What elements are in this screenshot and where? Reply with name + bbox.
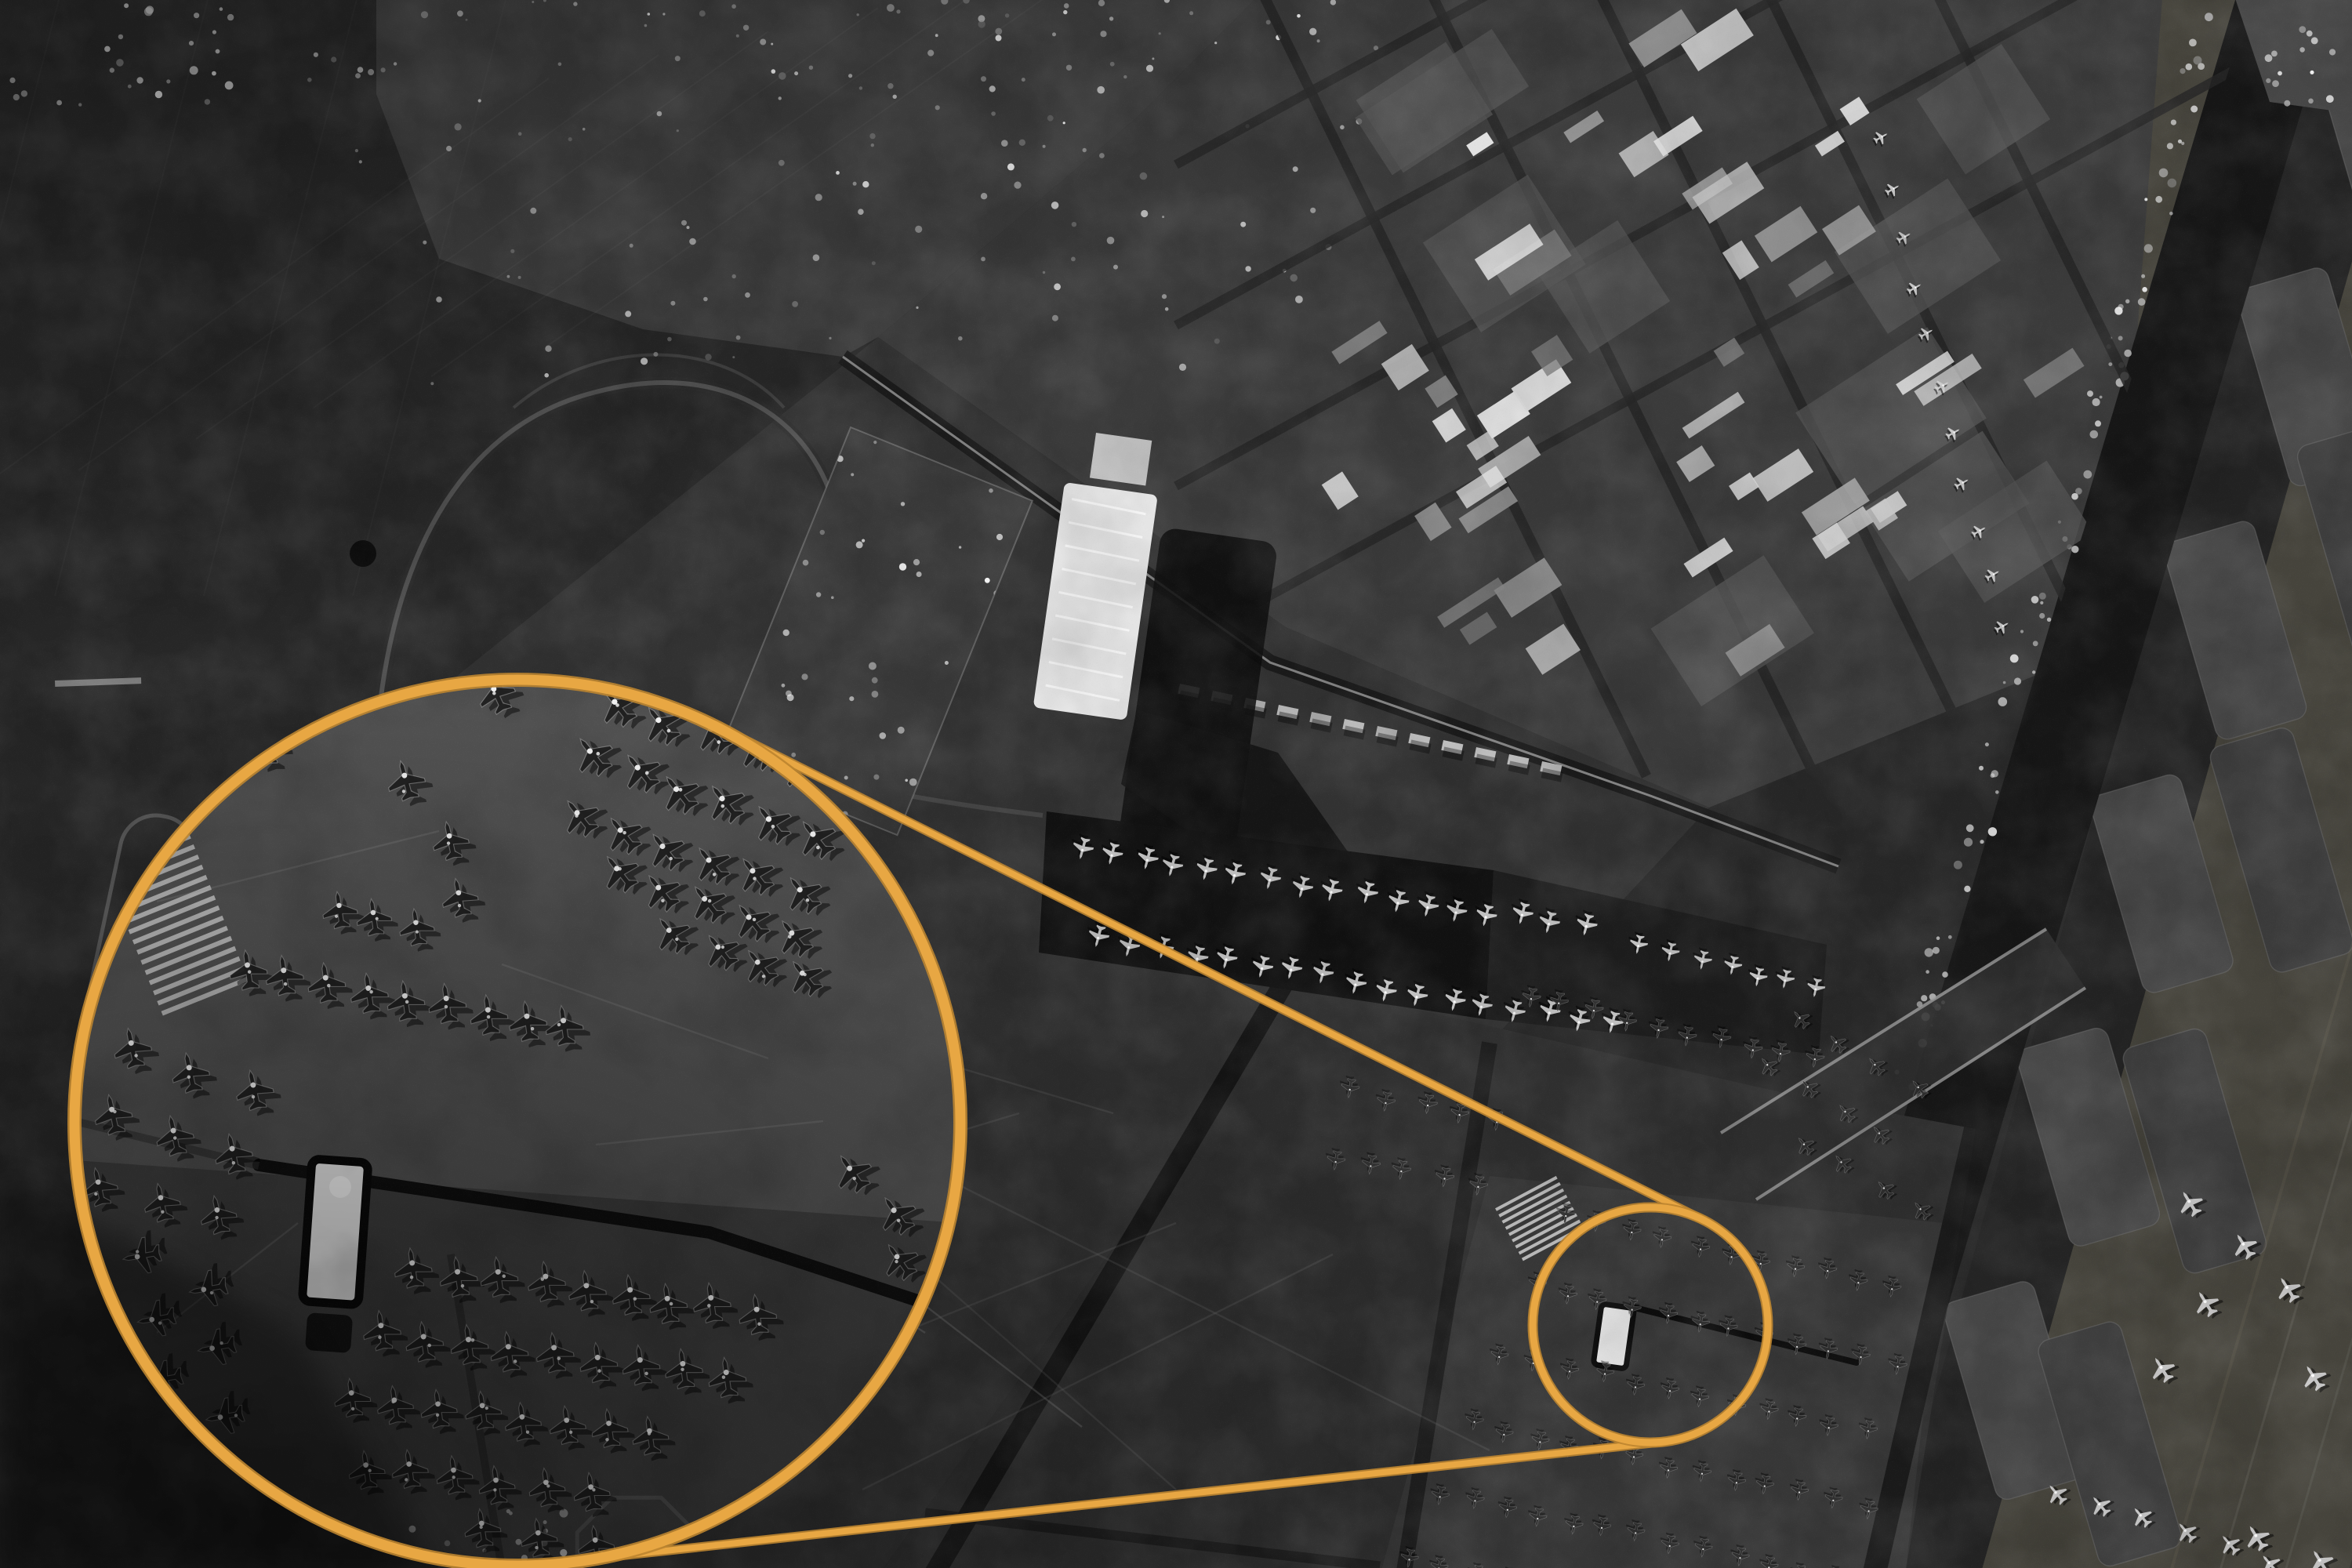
satellite-image [0,0,2352,1568]
scene-layer [0,0,2352,1568]
sar-image-canvas [0,0,2352,1568]
